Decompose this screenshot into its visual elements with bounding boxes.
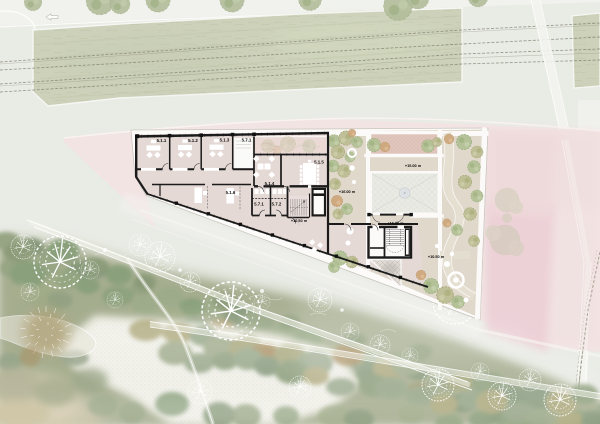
svg-text:5.1.1: 5.1.1	[157, 138, 167, 143]
svg-text:5.1.3: 5.1.3	[220, 138, 230, 143]
svg-text:5.1.6: 5.1.6	[226, 190, 236, 195]
svg-text:5.1.2: 5.1.2	[188, 138, 198, 143]
svg-text:5.1.4: 5.1.4	[265, 181, 275, 186]
svg-text:+16.00 m: +16.00 m	[387, 222, 404, 226]
svg-text:5.7.2: 5.7.2	[272, 201, 282, 206]
svg-text:5.1.5: 5.1.5	[314, 160, 324, 165]
svg-text:+16.00 m: +16.00 m	[339, 190, 356, 194]
svg-text:+15.00 m: +15.00 m	[405, 164, 422, 168]
svg-text:+10.50 m: +10.50 m	[291, 219, 308, 223]
svg-text:5.7.1: 5.7.1	[254, 201, 264, 206]
svg-text:+10.50 m: +10.50 m	[428, 255, 445, 259]
svg-text:5.7.1: 5.7.1	[242, 137, 252, 142]
